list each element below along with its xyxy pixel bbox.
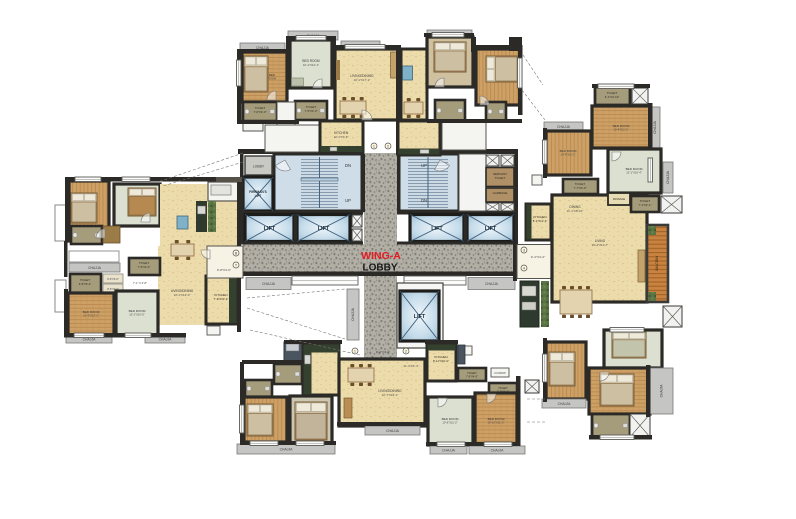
svg-text:UP: UP — [421, 163, 427, 168]
svg-text:7'-5"X4'-3": 7'-5"X4'-3" — [304, 109, 317, 113]
svg-text:8'-1"X12'-4": 8'-1"X12'-4" — [533, 219, 548, 223]
svg-text:12'-7"X16'-1": 12'-7"X16'-1" — [382, 393, 399, 397]
svg-text:CHAJJA: CHAJJA — [262, 282, 276, 286]
svg-text:8'-11"X10'-2": 8'-11"X10'-2" — [433, 359, 449, 363]
svg-text:7'-5"X4'-0": 7'-5"X4'-0" — [138, 265, 151, 269]
svg-text:11'-4"X4'-4": 11'-4"X4'-4" — [403, 364, 418, 368]
svg-text:BALCONY: BALCONY — [655, 255, 659, 271]
svg-text:7'-1"X4'-1": 7'-1"X4'-1" — [638, 203, 651, 207]
svg-text:CHAJJA: CHAJJA — [88, 266, 102, 270]
svg-text:TOILET: TOILET — [498, 386, 508, 390]
svg-text:10'-9"X11'-1": 10'-9"X11'-1" — [613, 128, 628, 132]
svg-text:1: 1 — [373, 144, 375, 148]
svg-text:CHAJJA: CHAJJA — [351, 307, 355, 321]
svg-text:LIFT: LIFT — [318, 226, 330, 232]
svg-text:7'-7"X4'-0": 7'-7"X4'-0" — [573, 186, 586, 190]
svg-text:7'-6"X4'-0": 7'-6"X4'-0" — [253, 110, 266, 114]
svg-text:8'-6"X3'-0": 8'-6"X3'-0" — [107, 278, 119, 281]
svg-text:11'-1"X8'-10": 11'-1"X8'-10" — [567, 209, 583, 213]
svg-text:LIFT: LIFT — [264, 226, 276, 232]
svg-text:12'-1"X10'-4": 12'-1"X10'-4" — [626, 171, 642, 175]
svg-text:TOILET: TOILET — [495, 176, 506, 180]
svg-text:7'-1" X 2'-8": 7'-1" X 2'-8" — [133, 281, 147, 285]
svg-text:DN: DN — [345, 163, 351, 168]
svg-text:TOILET: TOILET — [139, 261, 149, 265]
svg-text:4: 4 — [523, 266, 525, 270]
svg-text:BED ROOM: BED ROOM — [83, 310, 100, 314]
svg-text:20'-4"X11'-7": 20'-4"X11'-7" — [592, 243, 608, 247]
svg-text:10'-1"X7'-9": 10'-1"X7'-9" — [334, 135, 349, 139]
svg-text:3: 3 — [523, 248, 525, 252]
svg-text:CHAJJA: CHAJJA — [666, 170, 670, 184]
svg-text:LIFT: LIFT — [414, 314, 426, 320]
svg-text:CHAJJA: CHAJJA — [386, 429, 400, 433]
svg-text:6'-8"X6'-2": 6'-8"X6'-2" — [79, 282, 92, 286]
svg-text:GARBAGE: GARBAGE — [493, 191, 508, 195]
svg-text:CHAJJA: CHAJJA — [660, 384, 664, 398]
svg-text:CHAJJA: CHAJJA — [83, 337, 97, 341]
svg-text:BED ROOM: BED ROOM — [560, 149, 577, 153]
svg-text:CHAJJA: CHAJJA — [653, 120, 657, 134]
svg-text:10'-4"X11'-1": 10'-4"X11'-1" — [560, 153, 575, 157]
svg-text:6'-8"X4'-0": 6'-8"X4'-0" — [217, 268, 231, 272]
svg-text:CHAJJA: CHAJJA — [280, 447, 294, 451]
svg-text:10'-1"X12'-0": 10'-1"X12'-0" — [174, 293, 191, 297]
svg-text:9'-4"X4'-2": 9'-4"X4'-2" — [376, 350, 390, 354]
svg-text:BED: BED — [269, 73, 276, 77]
svg-text:CHAJJA: CHAJJA — [558, 402, 572, 406]
svg-text:T: T — [235, 263, 237, 267]
svg-text:LIFT: LIFT — [431, 226, 443, 232]
svg-text:2: 2 — [405, 349, 407, 353]
svg-text:LIFT: LIFT — [255, 194, 262, 198]
svg-text:7'-9"X10'-1": 7'-9"X10'-1" — [214, 297, 229, 301]
svg-text:LOBBY: LOBBY — [253, 165, 265, 169]
svg-text:DN: DN — [421, 198, 427, 203]
svg-text:CHAJJA: CHAJJA — [485, 282, 499, 286]
svg-text:BED ROOM: BED ROOM — [442, 417, 459, 421]
svg-text:9'-4"X4'-2": 9'-4"X4'-2" — [531, 255, 545, 259]
svg-text:BED ROOM: BED ROOM — [488, 417, 505, 421]
svg-text:ROOM: ROOM — [268, 77, 276, 81]
svg-text:10'-1"X10'-5": 10'-1"X10'-5" — [129, 313, 145, 317]
svg-text:7'-6"X4'-0": 7'-6"X4'-0" — [466, 375, 478, 379]
svg-text:1: 1 — [354, 349, 356, 353]
svg-text:10'-1"X17'-2": 10'-1"X17'-2" — [354, 78, 371, 82]
svg-text:CHAJJA: CHAJJA — [491, 448, 505, 452]
svg-text:BED ROOM: BED ROOM — [626, 167, 643, 171]
svg-text:6'-1"X4'-10": 6'-1"X4'-10" — [605, 95, 620, 99]
svg-text:3.0 DROP: 3.0 DROP — [494, 371, 506, 375]
svg-text:UP: UP — [345, 198, 351, 203]
svg-text:2: 2 — [387, 144, 389, 148]
svg-text:WING-A: WING-A — [361, 250, 401, 262]
svg-text:BED ROOM: BED ROOM — [129, 309, 146, 313]
svg-text:CHAJJA: CHAJJA — [159, 337, 173, 341]
svg-text:10'-1"X12'-1": 10'-1"X12'-1" — [303, 63, 319, 67]
svg-text:TOILET: TOILET — [80, 278, 90, 282]
svg-text:CHAJJA: CHAJJA — [557, 125, 571, 129]
svg-text:TOILET: TOILET — [467, 371, 477, 375]
svg-text:10'-10"X11'-2": 10'-10"X11'-2" — [488, 421, 505, 425]
svg-text:10'-2"X12'-1": 10'-2"X12'-1" — [83, 314, 99, 318]
svg-text:CHAJJA: CHAJJA — [442, 448, 456, 452]
svg-text:BED ROOM: BED ROOM — [613, 124, 630, 128]
svg-text:LIFT: LIFT — [485, 226, 497, 232]
svg-text:PASSAGE: PASSAGE — [613, 197, 625, 201]
svg-text:10'-6"X11'-2": 10'-6"X11'-2" — [442, 421, 457, 425]
